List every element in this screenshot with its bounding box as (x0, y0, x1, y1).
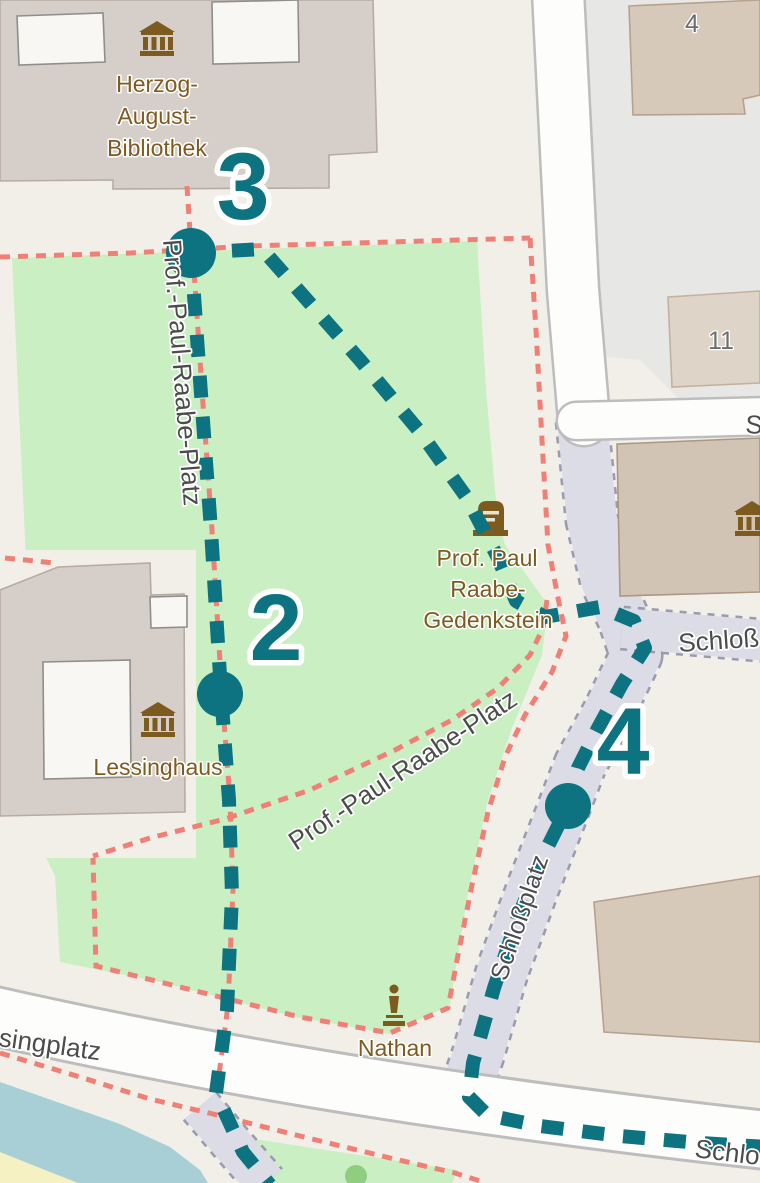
street-schloss-east-clipped: Schloß (677, 622, 760, 658)
label-gedenkstein-line1: Prof. Paul (437, 545, 538, 571)
waypoint-4-marker[interactable] (545, 783, 591, 829)
label-herzog-august-bibliothek-line3: Bibliothek (107, 135, 207, 161)
label-lessinghaus: Lessinghaus (93, 754, 222, 780)
road-east-top (576, 416, 760, 421)
label-herzog-august-bibliothek-line2: August- (117, 103, 196, 129)
building-bottom-right (594, 876, 760, 1042)
label-gedenkstein-line2: Raabe- (450, 576, 525, 602)
road-service-top (558, 0, 584, 420)
building-white-2 (212, 0, 299, 64)
house-number-11: 11 (708, 327, 734, 355)
building-white-1 (17, 13, 105, 65)
label-nathan: Nathan (358, 1035, 432, 1061)
waypoint-3-number: 3 (217, 134, 270, 240)
label-herzog-august-bibliothek-line1: Herzog- (116, 71, 198, 97)
building-lessinghaus-annex (150, 596, 187, 628)
map-canvas[interactable]: 324 Herzog-August-BibliothekLessinghausP… (0, 0, 760, 1183)
waypoint-2-marker[interactable] (197, 671, 243, 717)
street-s-clipped: S (745, 409, 760, 440)
house-number-4: 4 (685, 10, 699, 38)
waypoint-2-number: 2 (250, 575, 303, 681)
label-gedenkstein-line3: Gedenkstein (423, 607, 552, 633)
waypoint-4-number: 4 (597, 689, 650, 795)
